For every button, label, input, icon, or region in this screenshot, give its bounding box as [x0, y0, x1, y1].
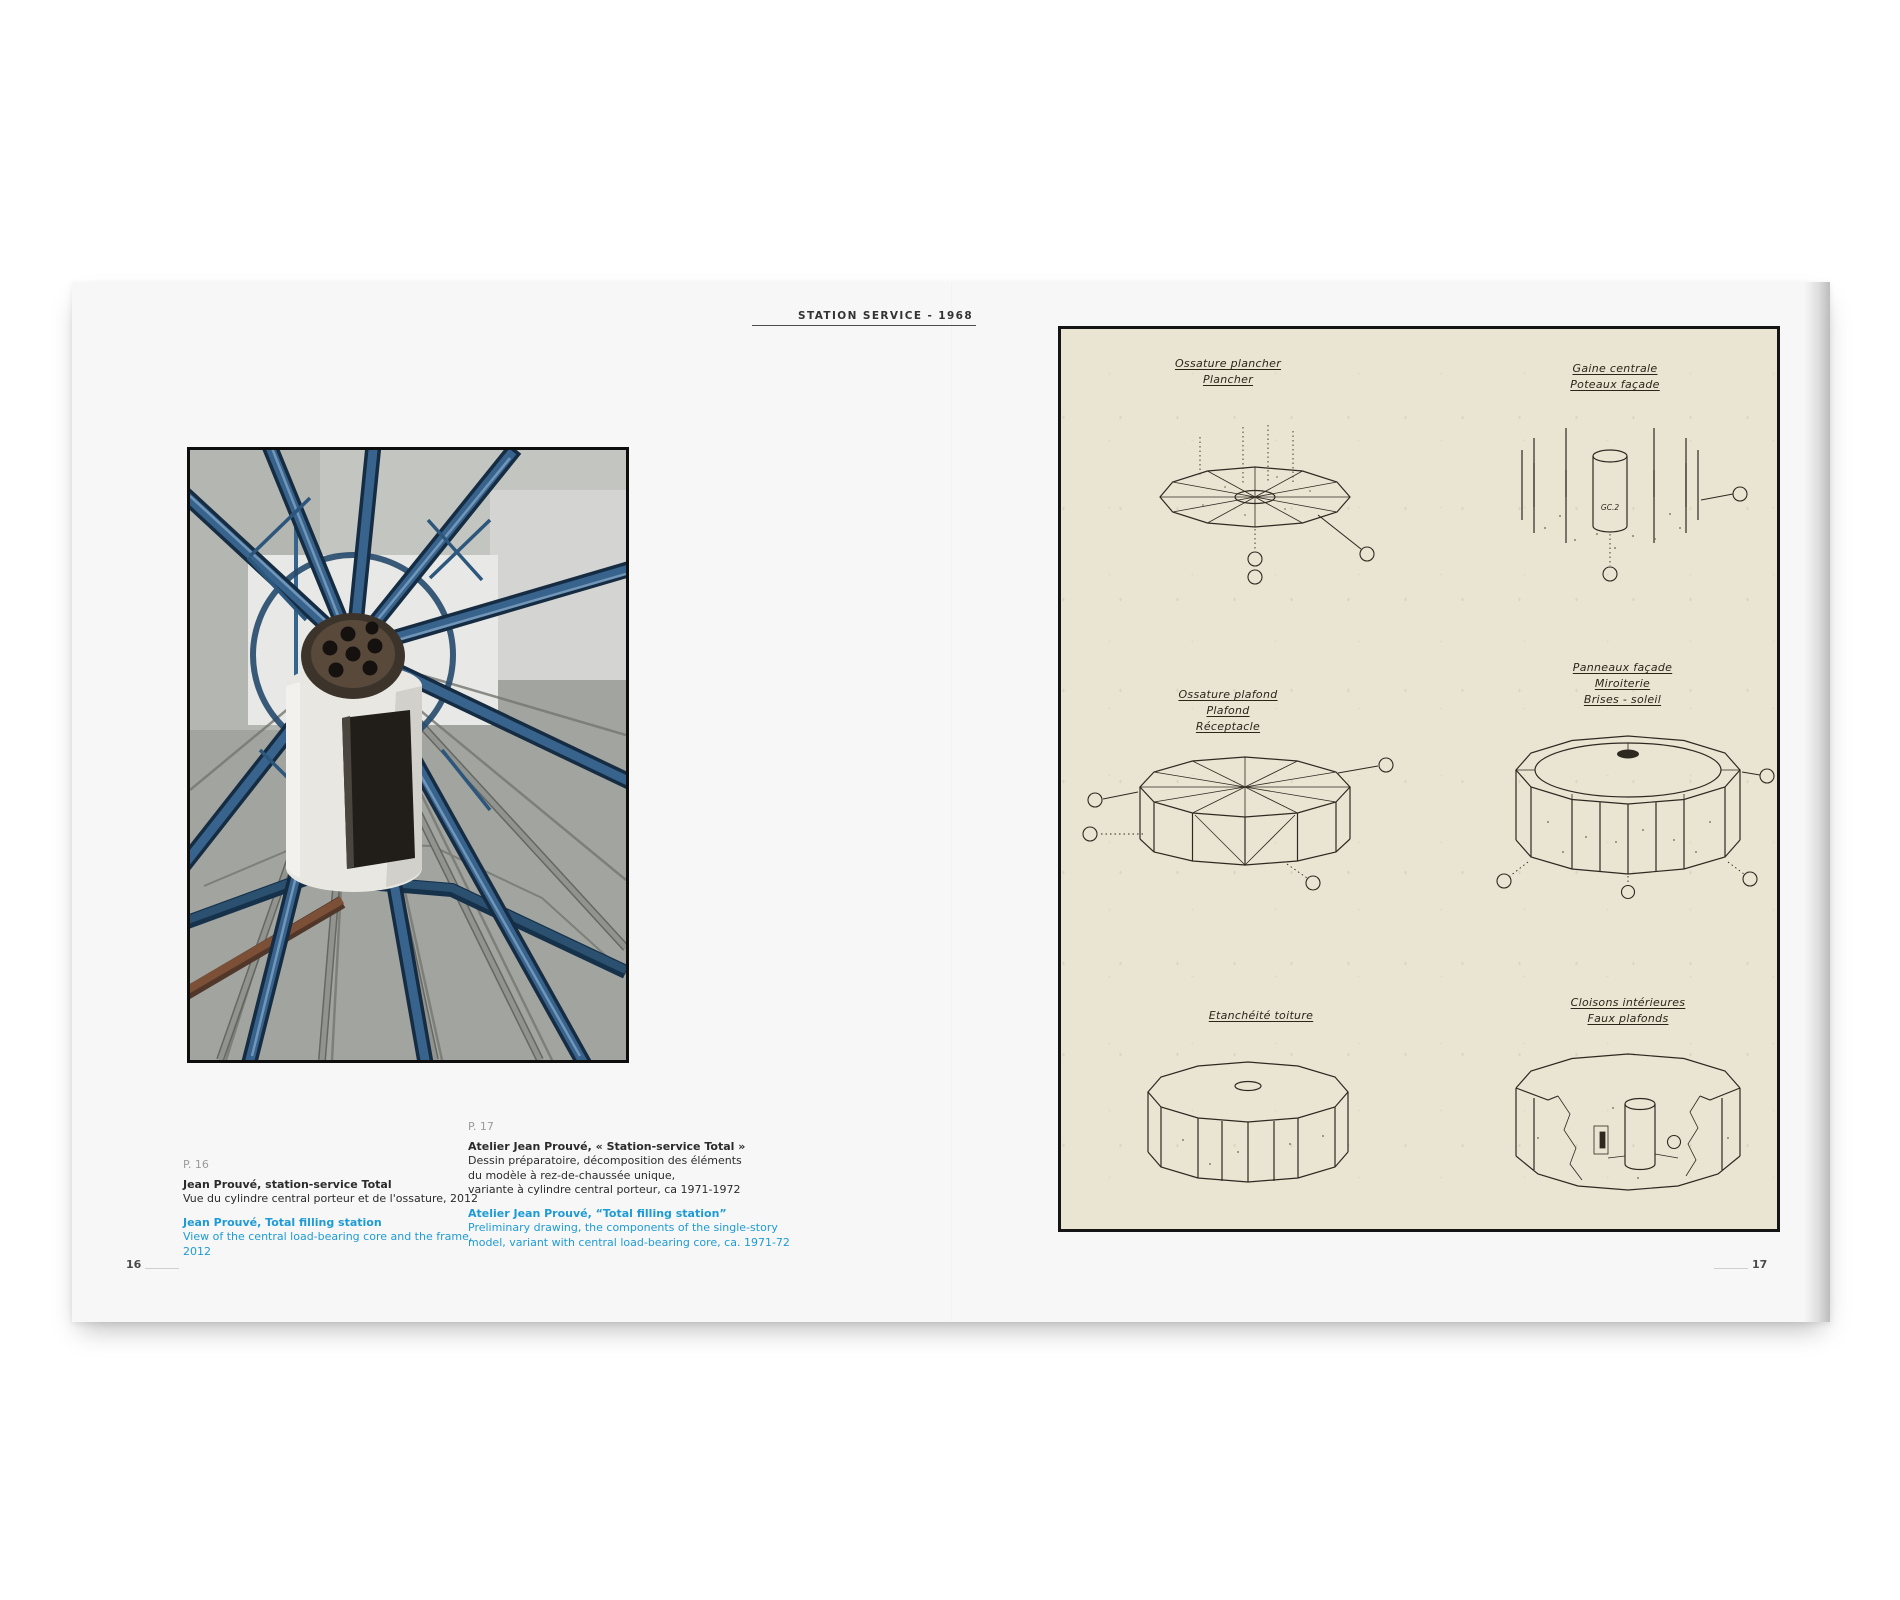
caption-left-page: P. 16 Jean Prouvé, station-service Total… [183, 1158, 493, 1259]
page-number-text: 17 [1752, 1258, 1767, 1271]
label-roof-sealing: Etanchéité toiture [1196, 1008, 1326, 1024]
page-number-right: 17 [1714, 1258, 1767, 1271]
diagram-central-duct: GC.2 [1465, 408, 1755, 598]
caption-en-title: Atelier Jean Prouvé, “Total filling stat… [468, 1207, 818, 1222]
caption-fr-line: Vue du cylindre central porteur et de l'… [183, 1192, 493, 1207]
label-facade-panels: Panneaux façadeMiroiterieBrises - soleil [1550, 660, 1695, 708]
caption-en-line: View of the central load-bearing core an… [183, 1230, 493, 1259]
spine [951, 282, 952, 1322]
photo-station-service-core [187, 447, 629, 1063]
page-edge-shadow [1804, 282, 1830, 1322]
label-floor-frame: Ossature plancherPlancher [1158, 356, 1298, 388]
caption-fr-line: Dessin préparatoire, décomposition des é… [468, 1154, 818, 1169]
diagram-facade-panels [1478, 712, 1778, 900]
diagram-interior-partitions [1478, 1038, 1778, 1203]
caption-fr-title: Atelier Jean Prouvé, « Station-service T… [468, 1140, 818, 1155]
caption-en-title: Jean Prouvé, Total filling station [183, 1216, 493, 1231]
running-head: STATION SERVICE - 1968 [752, 310, 976, 326]
caption-page-ref: P. 16 [183, 1158, 493, 1173]
diagram-floor-frame [1105, 425, 1405, 600]
folio-rule [145, 1268, 179, 1269]
caption-en-line: model, variant with central load-bearing… [468, 1236, 818, 1251]
book-spread-scan: STATION SERVICE - 1968 [0, 0, 1900, 1600]
page-number-left: 16 [126, 1258, 179, 1271]
caption-fr-line: du modèle à rez-de-chaussée unique, [468, 1169, 818, 1184]
label-central-duct: Gaine centralePoteaux façade [1550, 361, 1680, 393]
diagram-roof-sealing [1108, 1040, 1388, 1200]
caption-fr-line: variante à cylindre central porteur, ca … [468, 1183, 818, 1198]
caption-right-page: P. 17 Atelier Jean Prouvé, « Station-ser… [468, 1120, 818, 1250]
label-interior-partitions: Cloisons intérieuresFaux plafonds [1548, 995, 1708, 1027]
cylinder-note: GC.2 [1601, 503, 1619, 512]
caption-fr-title: Jean Prouvé, station-service Total [183, 1178, 493, 1193]
folio-rule [1714, 1268, 1748, 1269]
label-ceiling-frame: Ossature plafondPlafondRéceptacle [1158, 687, 1298, 735]
photo-illustration [190, 450, 626, 1060]
page-number-text: 16 [126, 1258, 141, 1271]
caption-page-ref: P. 17 [468, 1120, 818, 1135]
diagram-ceiling-frame [1075, 742, 1405, 894]
caption-en-line: Preliminary drawing, the components of t… [468, 1221, 818, 1236]
